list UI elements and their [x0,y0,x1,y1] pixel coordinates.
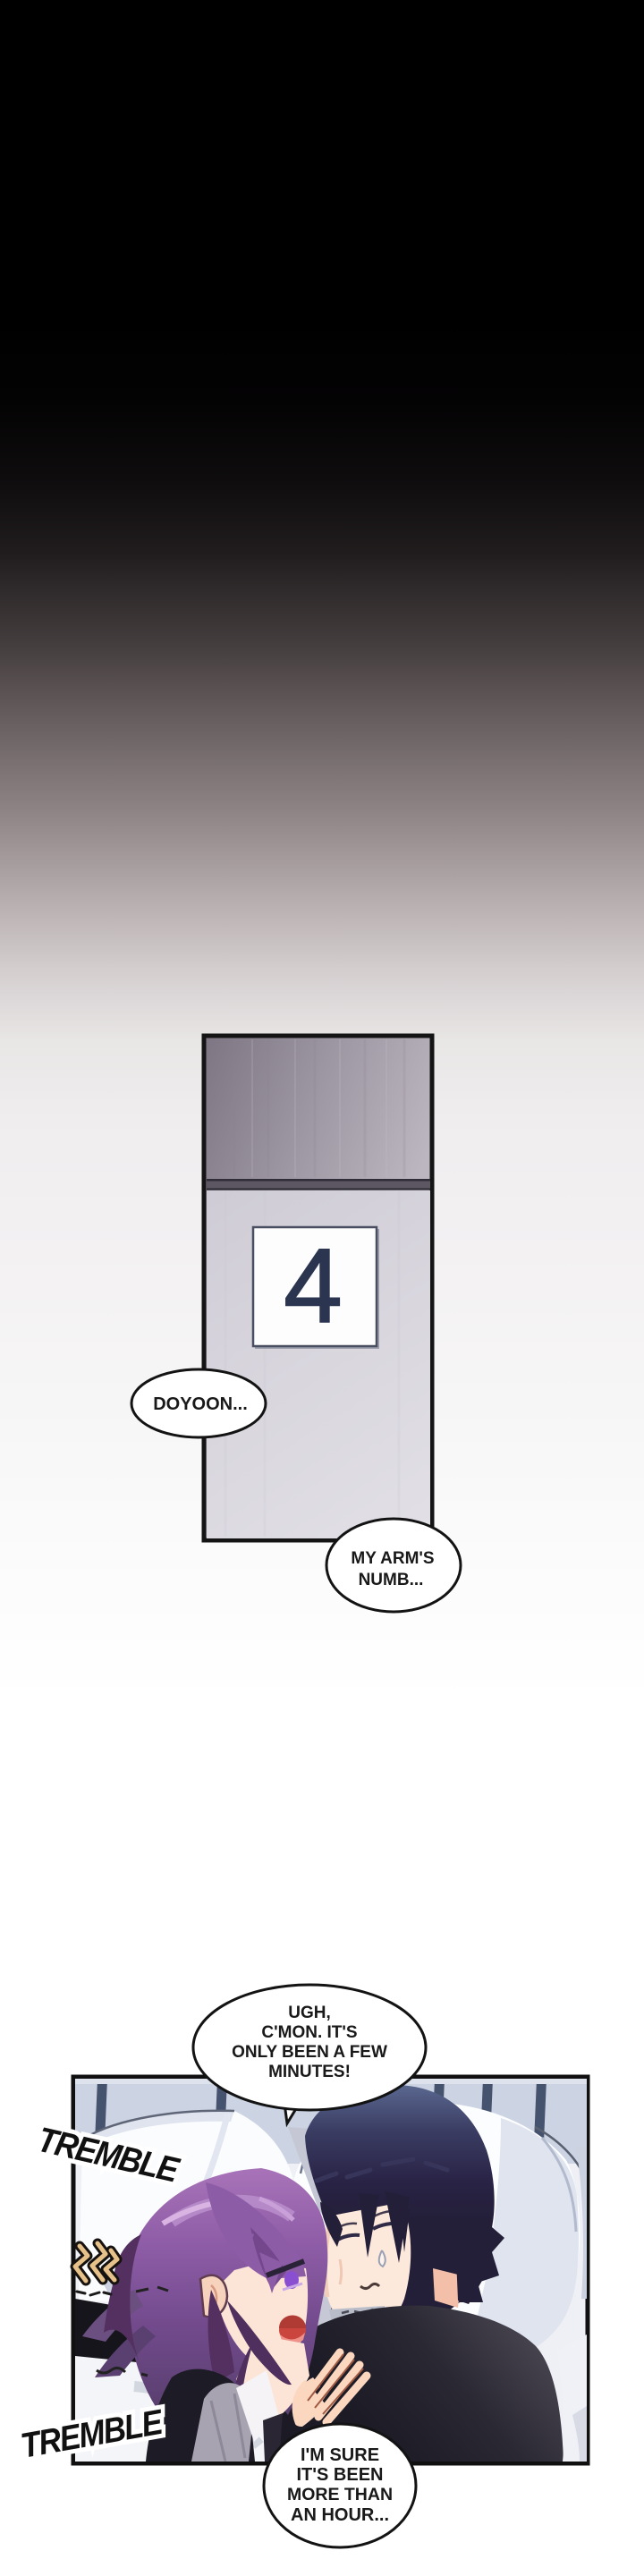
svg-text:AN HOUR...: AN HOUR... [291,2505,389,2525]
svg-text:4: 4 [284,1227,343,1345]
svg-text:UGH,: UGH, [288,2004,331,2022]
svg-text:MY ARM'S: MY ARM'S [351,1549,434,1568]
svg-text:I'M SURE: I'M SURE [301,2445,379,2465]
svg-text:MINUTES!: MINUTES! [268,2063,351,2081]
svg-text:NUMB...: NUMB... [359,1571,424,1589]
svg-text:DOYOON...: DOYOON... [153,1394,248,1414]
svg-text:IT'S BEEN: IT'S BEEN [297,2465,384,2485]
svg-text:MORE THAN: MORE THAN [287,2485,393,2504]
svg-text:ONLY BEEN A FEW: ONLY BEEN A FEW [232,2043,387,2062]
svg-text:C'MON. IT'S: C'MON. IT'S [261,2023,357,2042]
